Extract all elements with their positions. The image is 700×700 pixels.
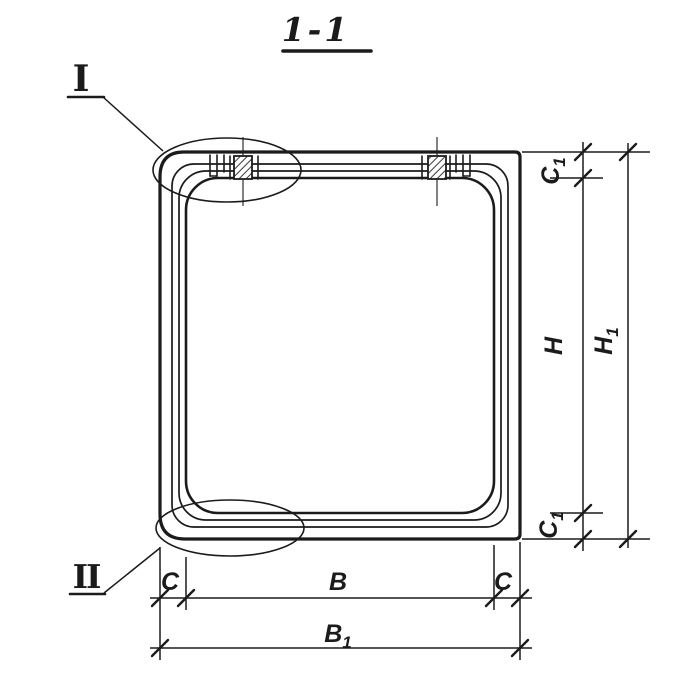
embedded-plate-hatched (234, 156, 252, 179)
section-1-1-drawing: 1-1 (0, 0, 700, 700)
drawing-sheet: 1-1 (0, 0, 700, 700)
inner-line-middle (179, 171, 501, 520)
callout-ellipse-bottom-left-corner (156, 500, 304, 556)
inner-face-contour (186, 178, 494, 513)
section-body (160, 137, 520, 539)
inner-surface-lines (172, 164, 508, 527)
dim-label-c1-top: C1 (537, 157, 569, 185)
inner-line-outer (172, 164, 508, 527)
dim-label-c-left: C (161, 568, 180, 596)
dim-label-c1-bottom: C1 (535, 511, 567, 539)
dim-label-b1: B1 (324, 620, 352, 652)
section-title-text: 1-1 (282, 10, 351, 49)
callout-ellipse-top-left-corner (153, 138, 301, 202)
detail-callout-bottom: II (70, 500, 304, 596)
dim-label-h: H (540, 336, 568, 355)
dimension-chain-right: C1 H C1 H1 (522, 142, 650, 551)
callout-label-I: I (73, 58, 90, 100)
dim-label-h1: H1 (590, 327, 622, 355)
callout-leader-line (103, 97, 163, 151)
callout-label-II: II (73, 557, 100, 596)
callout-leader-line (104, 548, 160, 593)
outer-contour (160, 152, 520, 539)
joint-detail-left (210, 137, 258, 206)
embedded-plate-hatched (428, 156, 446, 179)
drawing-title: 1-1 (282, 10, 371, 51)
dim-label-b: B (329, 568, 347, 596)
joint-detail-right (422, 137, 470, 206)
dimension-chain-bottom: C B C B1 (150, 542, 532, 660)
dim-label-c-right: C (494, 568, 513, 596)
